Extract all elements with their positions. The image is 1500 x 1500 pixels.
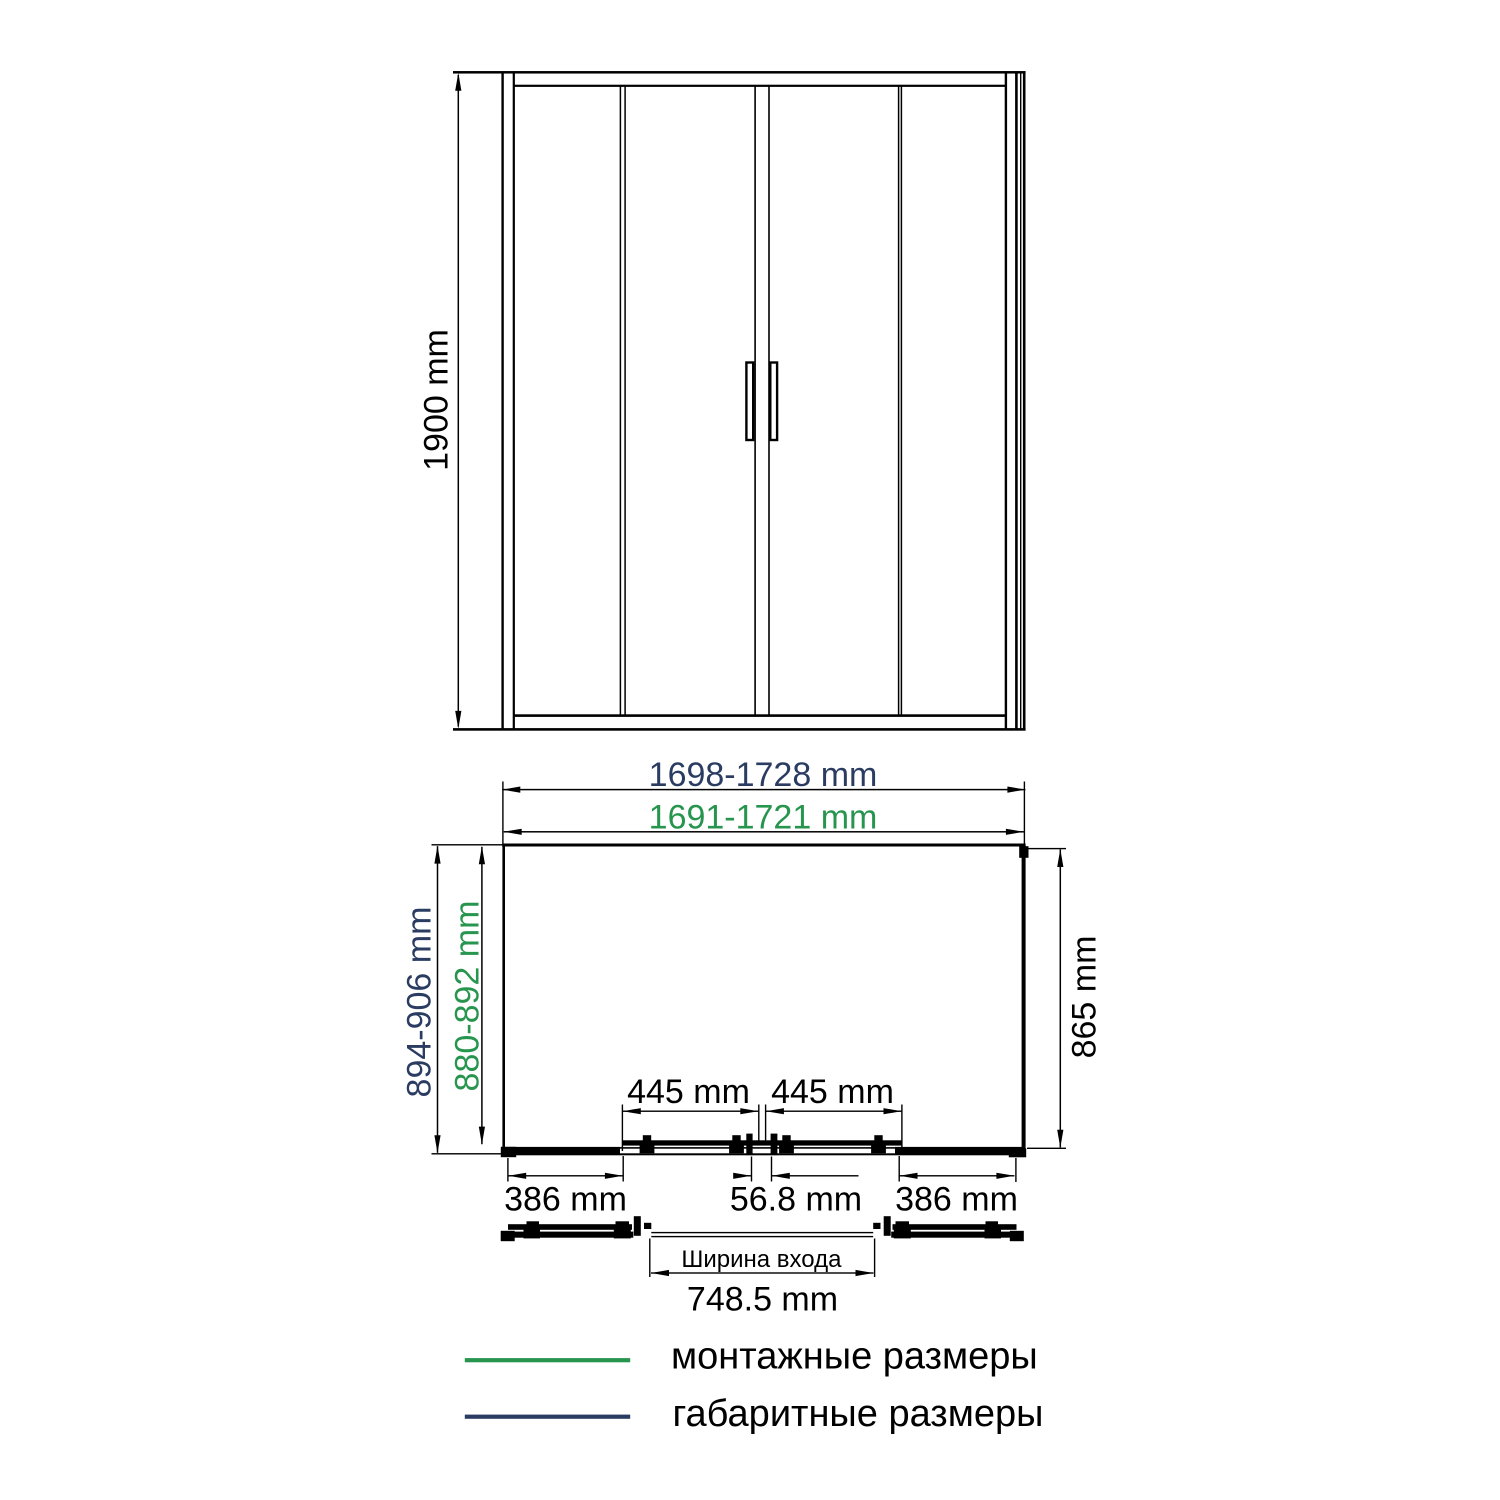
svg-text:880-892 mm: 880-892 mm — [449, 901, 487, 1092]
svg-text:1900 mm: 1900 mm — [418, 329, 456, 471]
svg-text:56.8 mm: 56.8 mm — [730, 1181, 862, 1219]
svg-text:386 mm: 386 mm — [504, 1181, 627, 1219]
svg-text:445 mm: 445 mm — [627, 1073, 750, 1111]
svg-text:386 mm: 386 mm — [895, 1181, 1018, 1219]
svg-text:865 mm: 865 mm — [1066, 936, 1104, 1059]
svg-text:1698-1728 mm: 1698-1728 mm — [649, 756, 878, 794]
svg-text:Ширина входа: Ширина входа — [681, 1246, 842, 1273]
svg-text:445 mm: 445 mm — [771, 1073, 894, 1111]
svg-text:748.5 mm: 748.5 mm — [687, 1281, 838, 1319]
svg-text:1691-1721 mm: 1691-1721 mm — [649, 799, 878, 837]
svg-text:монтажные размеры: монтажные размеры — [671, 1336, 1038, 1378]
svg-text:894-906 mm: 894-906 mm — [401, 907, 439, 1098]
svg-text:габаритные размеры: габаритные размеры — [673, 1393, 1044, 1435]
